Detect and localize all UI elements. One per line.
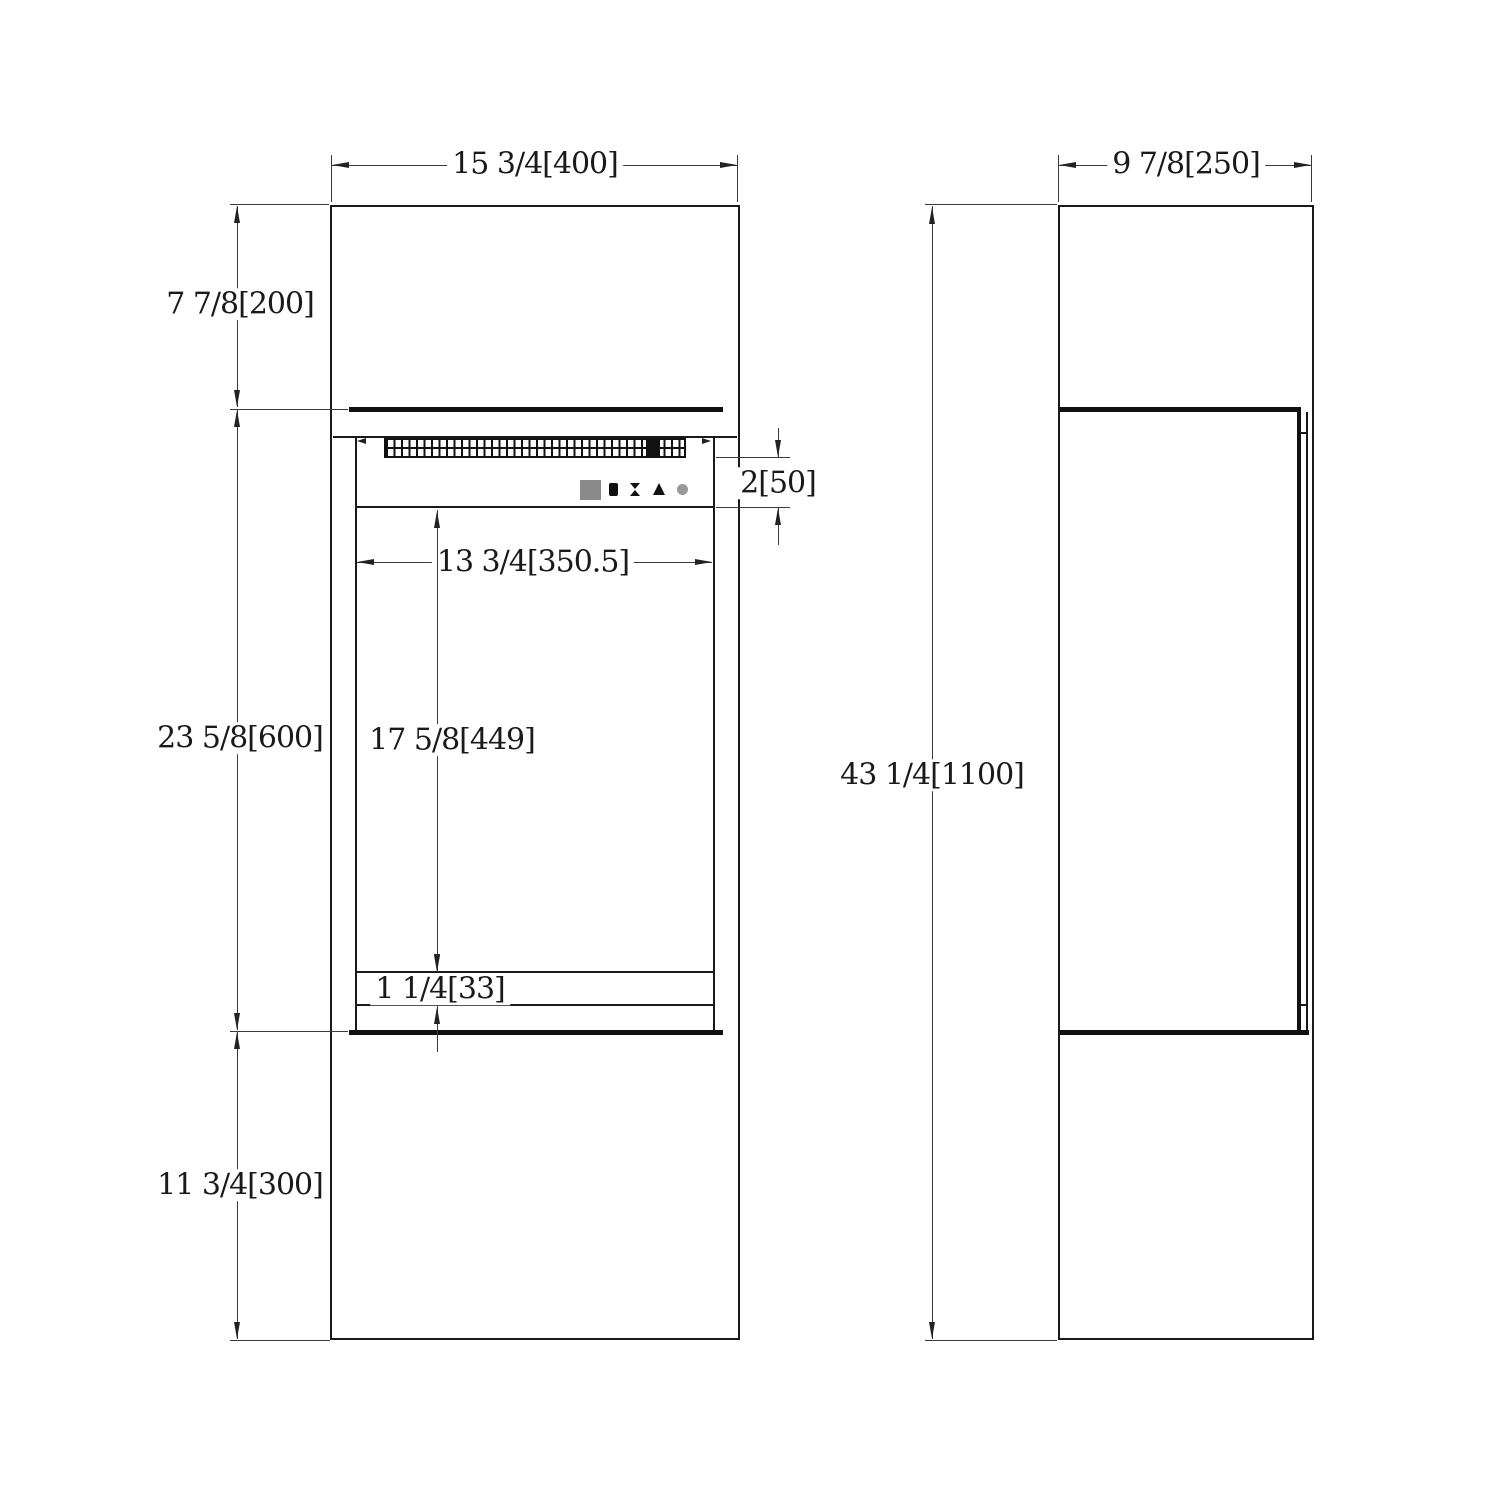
dim-text-base-section: 11 3/4[300] bbox=[152, 1169, 328, 1201]
flame-icon bbox=[609, 483, 618, 496]
dim-arrow bbox=[434, 511, 440, 528]
dim-arrow bbox=[775, 508, 781, 525]
dim-arrow bbox=[234, 390, 240, 407]
front-bottom-shelf-line bbox=[349, 1030, 723, 1035]
glass-corner-mark-left bbox=[357, 438, 366, 444]
control-band-bottom-line bbox=[355, 506, 715, 508]
side-frame-tick-bottom bbox=[1300, 1004, 1308, 1006]
dim-arrow bbox=[357, 559, 374, 565]
dim-text-bottom-gap: 1 1/4[33] bbox=[370, 973, 510, 1005]
dim-arrow bbox=[234, 410, 240, 427]
dim-arrow bbox=[234, 1013, 240, 1030]
side-bottom-shelf-line bbox=[1060, 1030, 1309, 1035]
ext-line bbox=[925, 1340, 1057, 1341]
vent-grille-dark-block bbox=[646, 438, 660, 458]
dim-arrow bbox=[775, 440, 781, 457]
dim-arrow bbox=[332, 162, 349, 168]
front-cabinet-outline bbox=[330, 205, 740, 1340]
dim-arrow bbox=[434, 1007, 440, 1024]
dim-arrow bbox=[234, 206, 240, 223]
display-screen bbox=[580, 480, 601, 500]
dim-text-overall-height: 43 1/4[1100] bbox=[835, 759, 1029, 791]
ext-line bbox=[1311, 155, 1312, 202]
dim-arrow bbox=[234, 1322, 240, 1339]
insert-left-frame-line bbox=[355, 437, 357, 1031]
ext-line bbox=[925, 204, 1057, 205]
dim-arrow bbox=[695, 559, 712, 565]
dim-text-glass-height: 17 5/8[449] bbox=[364, 724, 540, 756]
dim-text-control-band: 2[50] bbox=[735, 467, 821, 499]
ext-line bbox=[230, 409, 348, 410]
dim-arrow bbox=[720, 162, 737, 168]
ext-line bbox=[230, 204, 329, 205]
dim-text-glass-width: 13 3/4[350.5] bbox=[432, 546, 634, 578]
dim-text-top-section: 7 7/8[200] bbox=[161, 288, 319, 320]
side-cabinet-outline bbox=[1058, 205, 1314, 1340]
side-glass-front-line bbox=[1306, 412, 1308, 1030]
insert-right-frame-line bbox=[713, 437, 715, 1031]
ext-line bbox=[230, 1031, 348, 1032]
dim-arrow bbox=[1059, 162, 1076, 168]
dim-arrow bbox=[929, 207, 935, 224]
timer-icon bbox=[630, 483, 640, 496]
dim-arrow bbox=[434, 955, 440, 972]
side-frame-tick-top bbox=[1300, 432, 1308, 434]
dim-text-insert-section: 23 5/8[600] bbox=[152, 722, 328, 754]
vent-grille-mid-rail bbox=[384, 447, 686, 449]
tree-flame-icon bbox=[653, 483, 665, 495]
dim-arrow bbox=[234, 1032, 240, 1049]
side-insert-back-line bbox=[1297, 407, 1301, 1034]
power-icon bbox=[677, 484, 688, 495]
dim-text-side-depth: 9 7/8[250] bbox=[1107, 148, 1265, 180]
dim-text-front-width: 15 3/4[400] bbox=[447, 148, 623, 180]
ext-line bbox=[230, 1340, 330, 1341]
front-top-shelf-line bbox=[349, 407, 723, 412]
glass-corner-mark-right bbox=[702, 438, 711, 444]
dim-arrow bbox=[929, 1322, 935, 1339]
dim-arrow bbox=[1294, 162, 1311, 168]
ext-line bbox=[716, 457, 790, 458]
side-top-shelf-line bbox=[1060, 407, 1301, 412]
technical-drawing-canvas: 15 3/4[400] 7 7/8[200] 23 5/8[600] 11 3/… bbox=[0, 0, 1500, 1500]
ext-line bbox=[737, 155, 738, 202]
